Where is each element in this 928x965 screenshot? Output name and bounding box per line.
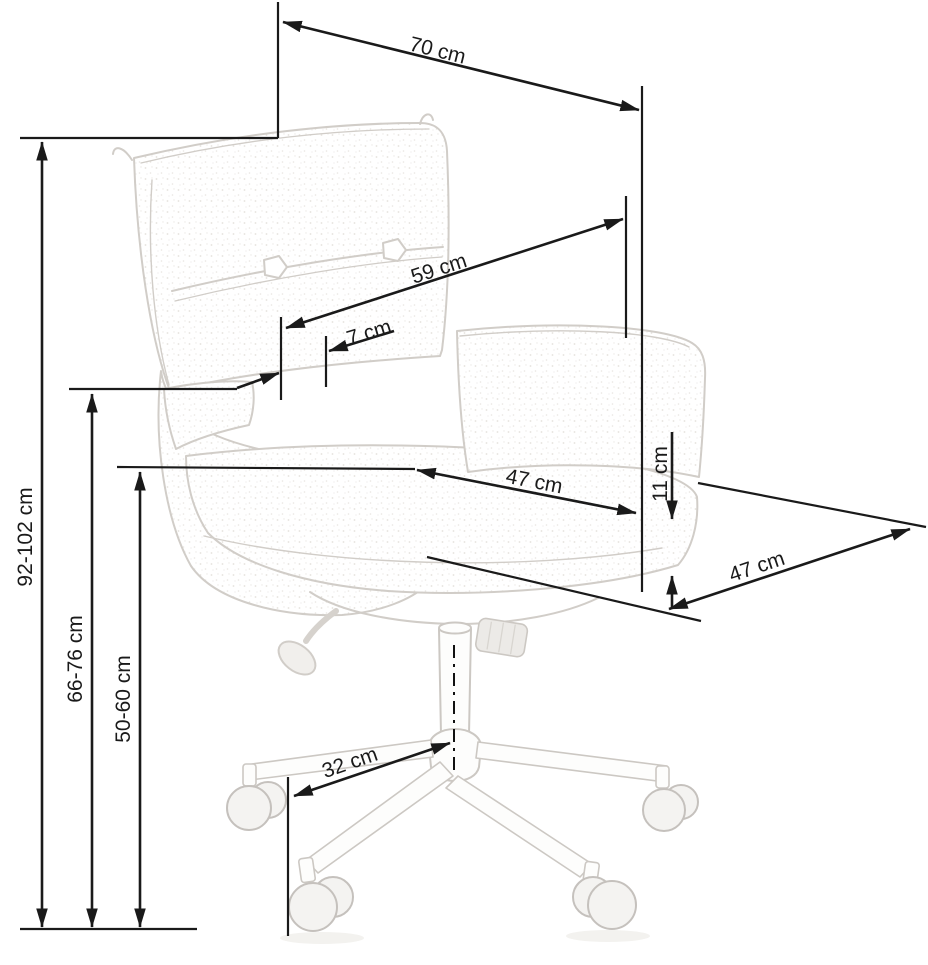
caster-wheel [643,789,685,831]
height-paddle [475,617,529,657]
label-cushion-thickness: 11 cm [649,446,672,502]
tilt-lever-knob [272,635,321,681]
casters [227,782,698,931]
dim-seat-width-line [669,529,910,609]
label-top-width: 70 cm [407,33,468,69]
diagram-svg: 70 cm 59 cm 7 cm 47 cm 47 cm 32 cm 11 cm… [0,0,928,965]
caster-wheel [227,786,271,830]
base-leg-front-right [446,776,592,877]
ext-seat-right-diagonal [698,483,926,527]
label-overall-height: 92-102 cm [14,487,37,586]
caster-stem [656,766,669,788]
chair-dimension-diagram: 70 cm 59 cm 7 cm 47 cm 47 cm 32 cm 11 cm… [0,0,928,965]
label-armrest-height: 66-76 cm [64,615,87,703]
floor-shadow [566,930,650,942]
caster-stem [243,764,256,786]
base-leg-right [476,742,667,782]
caster-wheel [588,881,636,929]
backrest-ear-left [113,148,132,160]
caster-stem [298,857,315,883]
gas-lift-top [439,623,471,634]
caster-wheel [289,883,337,931]
label-seat-height: 50-60 cm [112,655,135,743]
chair-illustration [113,114,705,944]
floor-shadow [280,932,364,944]
